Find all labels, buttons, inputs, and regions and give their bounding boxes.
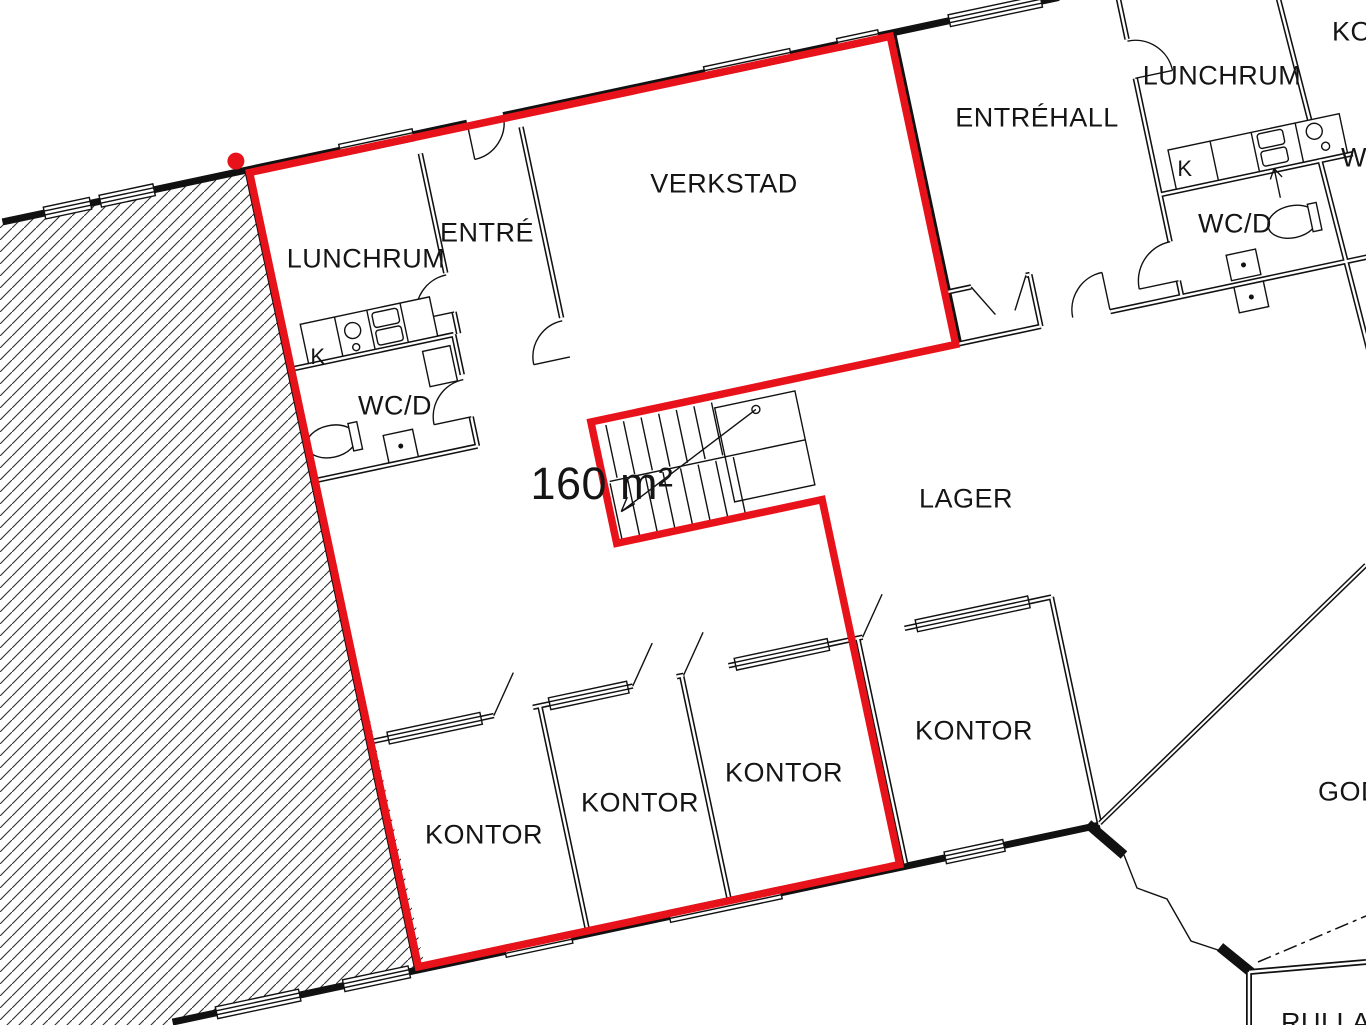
room-label-lunchrum-left: LUNCHRUM [287,244,446,274]
floorplan-screenshot: { "plan": { "type": "architectural-floor… [0,0,1366,1025]
room-label-entrehall: ENTRÉHALL [955,103,1119,133]
floor-plan-canvas: LUNCHRUMENTRÉVERKSTADENTRÉHALLLUNCHRUMKO… [0,0,1366,1025]
room-label-kontor-4: KONTOR [915,716,1033,746]
room-label-lunchrum-right: LUNCHRUM [1143,61,1302,91]
room-label-wcd-right: WC/D [1198,209,1272,239]
room-label-gods-clipped: GODS [1318,777,1366,807]
area-label: 160 m² [530,458,673,509]
room-label-lager: LAGER [919,484,1013,514]
room-label-kitchen-left: K [310,344,325,369]
room-label-verkstad: VERKSTAD [650,169,798,199]
room-label-kontor-clipped: KO [1332,17,1366,47]
room-label-entre: ENTRÉ [440,218,534,248]
room-label-wc-clipped: WC [1341,143,1366,173]
room-label-wcd-left: WC/D [358,391,432,421]
room-label-rulla-clipped: RULLA [1281,1008,1366,1025]
room-label-kontor-2: KONTOR [581,788,699,818]
room-label-kontor-3: KONTOR [725,758,843,788]
room-label-kitchen-right: K [1177,156,1192,181]
room-label-kontor-1: KONTOR [425,820,543,850]
